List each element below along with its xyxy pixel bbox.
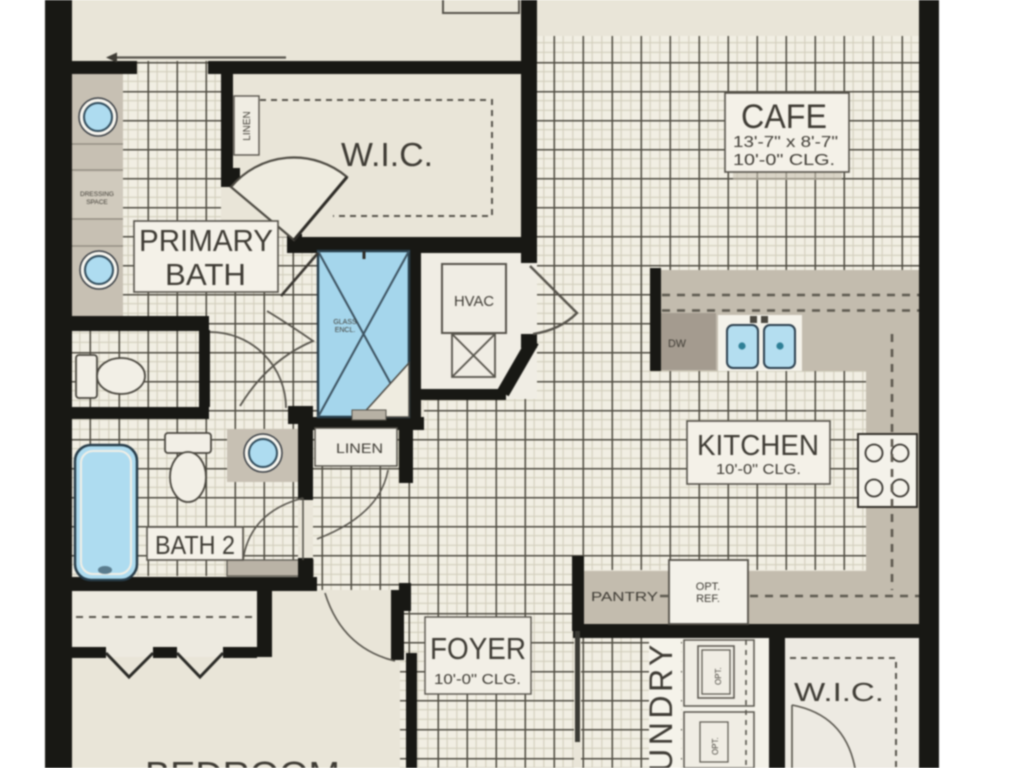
- svg-text:OPT.: OPT.: [711, 737, 720, 755]
- svg-text:OPT.: OPT.: [696, 581, 720, 593]
- svg-text:13'-7" x 8'-7": 13'-7" x 8'-7": [733, 134, 838, 151]
- svg-text:FOYER: FOYER: [430, 631, 526, 666]
- svg-text:DW: DW: [668, 338, 687, 350]
- svg-text:10'-0" CLG.: 10'-0" CLG.: [716, 461, 801, 478]
- svg-text:W.I.C.: W.I.C.: [341, 136, 433, 173]
- svg-text:KITCHEN: KITCHEN: [697, 430, 819, 462]
- svg-text:ENCL.: ENCL.: [335, 327, 356, 334]
- svg-text:DRESSING: DRESSING: [80, 191, 114, 198]
- svg-text:PANTRY: PANTRY: [591, 589, 658, 604]
- svg-text:LINEN: LINEN: [336, 440, 383, 456]
- svg-text:PRIMARY: PRIMARY: [139, 223, 273, 258]
- svg-text:OPT.: OPT.: [714, 667, 723, 685]
- svg-text:SPACE: SPACE: [86, 199, 108, 206]
- svg-text:10'-0" CLG.: 10'-0" CLG.: [733, 152, 835, 169]
- svg-text:LAUNDRY: LAUNDRY: [643, 641, 679, 768]
- svg-text:CAFE: CAFE: [741, 98, 827, 136]
- svg-text:W.I.C.: W.I.C.: [794, 677, 884, 707]
- svg-text:REF.: REF.: [696, 593, 720, 605]
- svg-text:HVAC: HVAC: [454, 293, 494, 310]
- svg-text:BEDROOM: BEDROOM: [145, 754, 340, 768]
- svg-text:LINEN: LINEN: [242, 111, 253, 140]
- svg-text:BATH: BATH: [165, 257, 246, 292]
- svg-text:BATH 2: BATH 2: [155, 530, 235, 560]
- svg-text:10'-0" CLG.: 10'-0" CLG.: [434, 671, 521, 688]
- svg-text:GLASS: GLASS: [333, 319, 357, 326]
